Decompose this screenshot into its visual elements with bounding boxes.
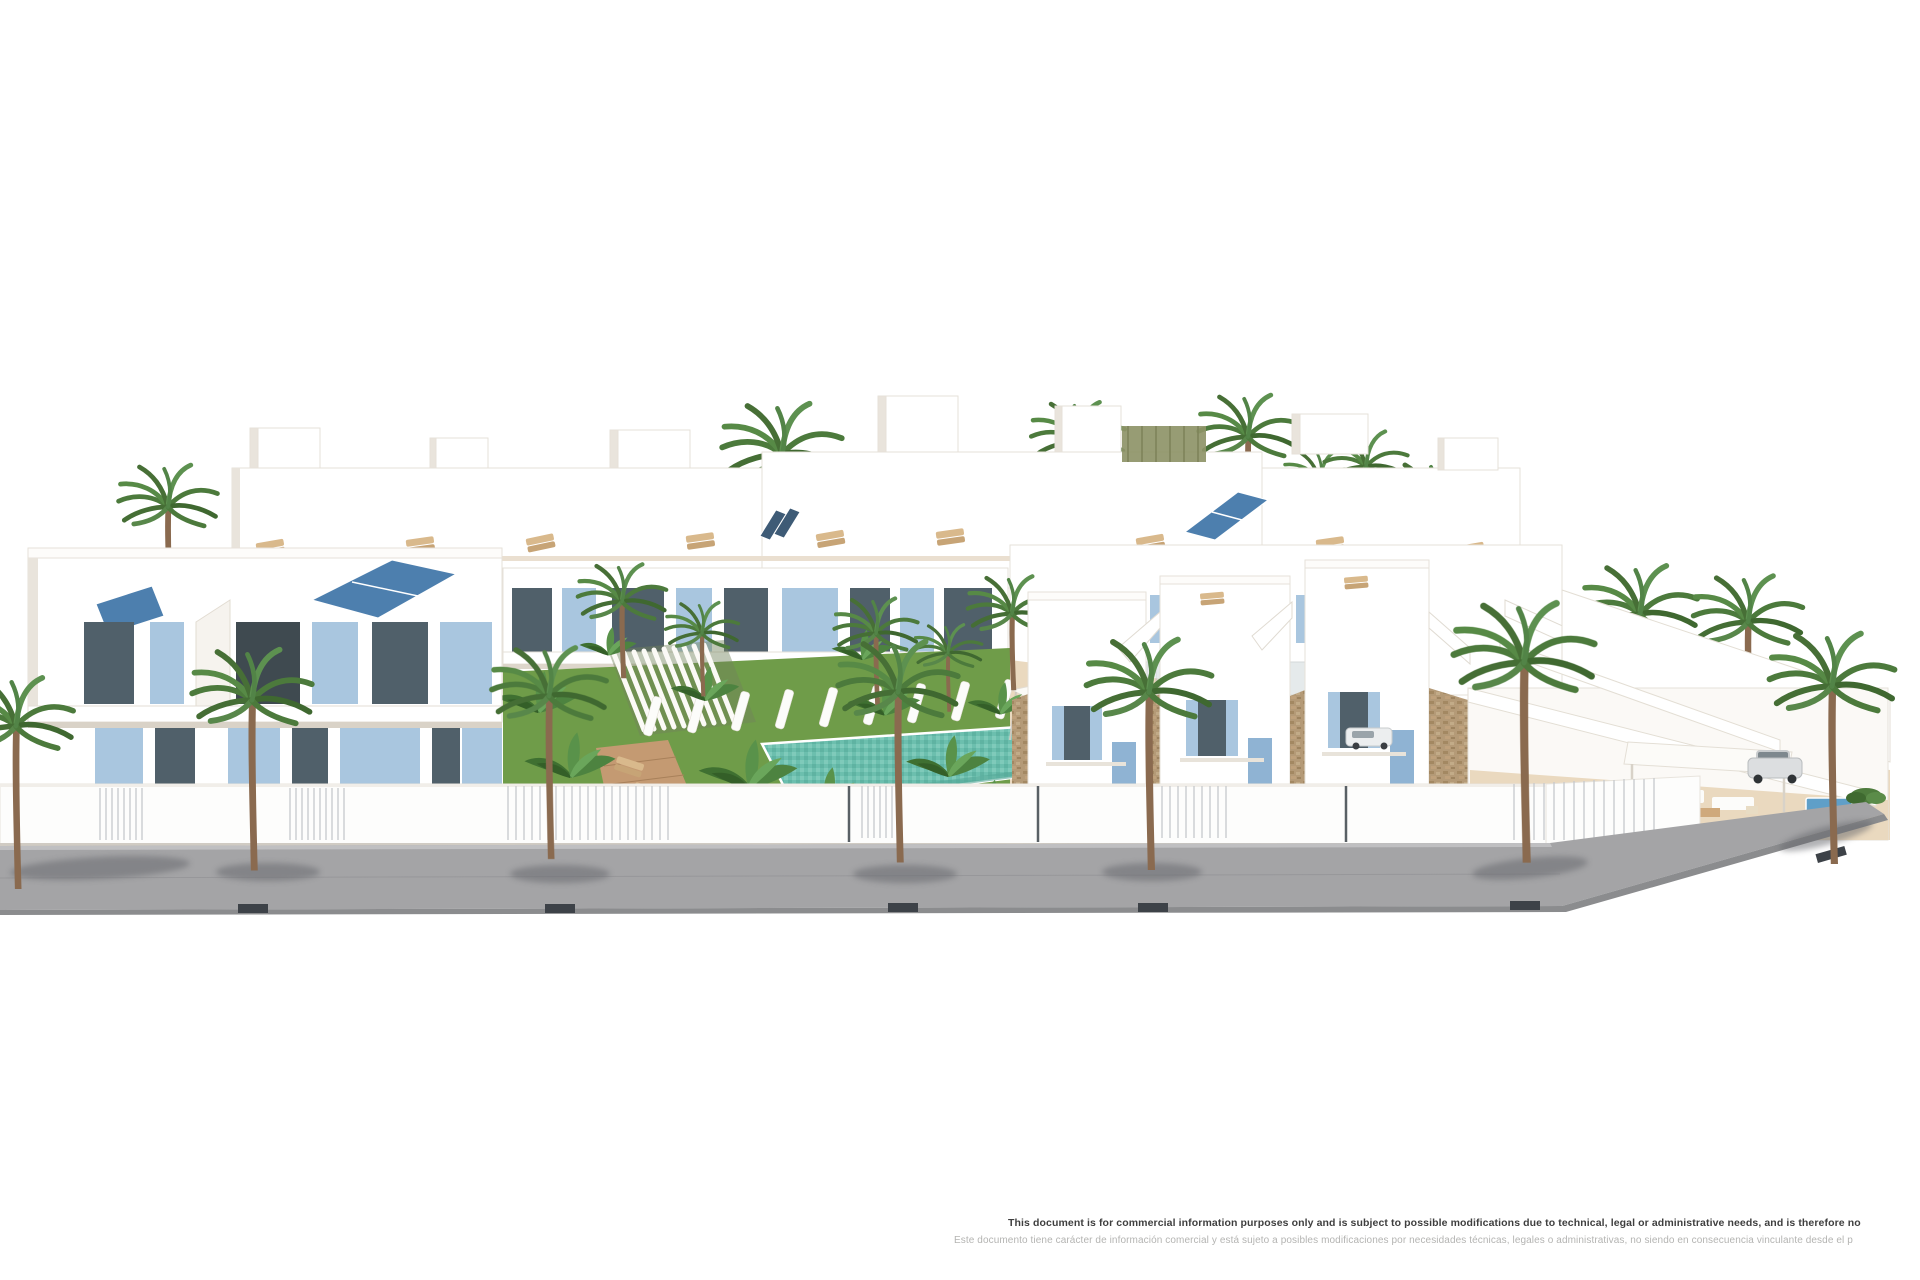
parked-car-white <box>1346 728 1392 750</box>
architectural-render-page: This document is for commercial informat… <box>0 0 1920 1280</box>
disclaimer-text-en: This document is for commercial informat… <box>1008 1217 1861 1229</box>
roof-pergola-green <box>1122 426 1206 462</box>
development-render-svg <box>0 0 1920 1280</box>
disclaimer-text-es: Este documento tiene carácter de informa… <box>954 1235 1853 1246</box>
left-apartment-block <box>28 548 502 820</box>
